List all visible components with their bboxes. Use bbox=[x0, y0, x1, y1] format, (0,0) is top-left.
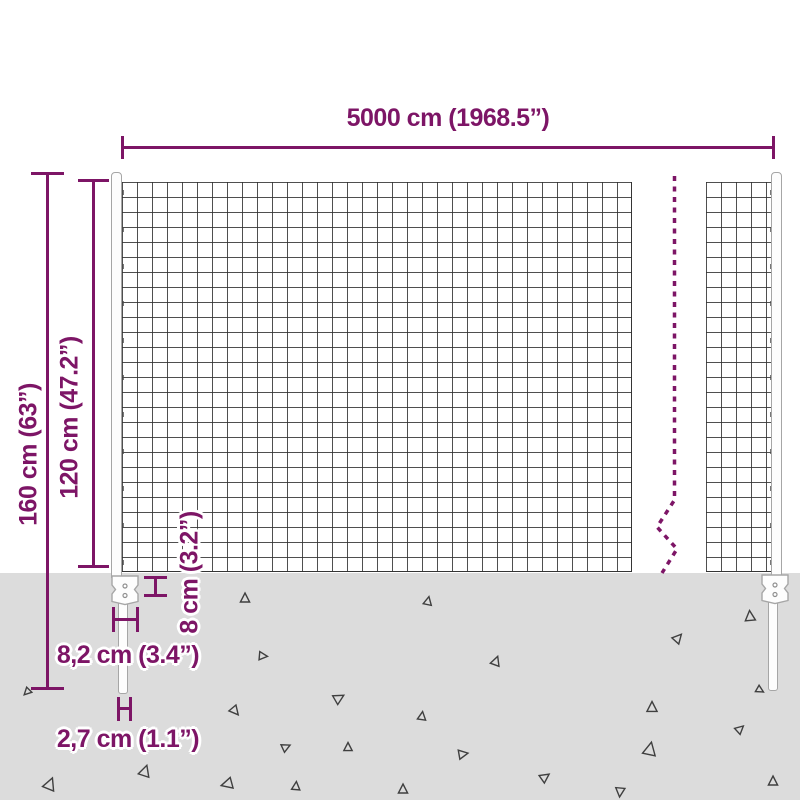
total-height-dimension-line bbox=[46, 173, 49, 689]
fence-mesh-right-panel bbox=[706, 182, 773, 572]
total-height-cap-top bbox=[31, 172, 64, 175]
anchor-depth-cap-bottom bbox=[144, 594, 167, 597]
post-diameter-cap-left bbox=[117, 697, 120, 721]
anchor-depth-cap-top bbox=[144, 576, 167, 579]
width-dimension-cap-left bbox=[121, 136, 124, 159]
total-height-cap-bottom bbox=[31, 687, 64, 690]
plate-width-dimension-line bbox=[114, 618, 138, 621]
anchor-depth-dimension-label: 8 cm (3.2”) bbox=[176, 505, 205, 641]
width-dimension-line bbox=[122, 146, 774, 149]
plate-width-dimension-label: 8,2 cm (3.4”) bbox=[46, 641, 210, 670]
mesh-height-dimension-label: 120 cm (47.2”) bbox=[56, 320, 85, 516]
mesh-height-cap-bottom bbox=[78, 565, 109, 568]
post-underground-right bbox=[768, 599, 778, 691]
plate-width-cap-left bbox=[112, 607, 115, 632]
mesh-height-cap-top bbox=[78, 179, 109, 182]
total-height-dimension-label: 160 cm (63”) bbox=[15, 369, 44, 541]
post-diameter-cap-right bbox=[129, 697, 132, 721]
plate-width-cap-right bbox=[136, 607, 139, 632]
fence-post-left bbox=[111, 172, 122, 578]
width-dimension-label: 5000 cm (1968.5”) bbox=[318, 104, 578, 133]
panel-break-line bbox=[657, 176, 677, 573]
width-dimension-cap-right bbox=[772, 136, 775, 159]
fence-post-right bbox=[771, 172, 782, 578]
mesh-height-dimension-line bbox=[92, 180, 95, 567]
diagram-stage: 5000 cm (1968.5”) 160 cm (63”) 120 cm (4… bbox=[0, 0, 800, 800]
post-diameter-dimension-label: 2,7 cm (1.1”) bbox=[46, 725, 210, 754]
